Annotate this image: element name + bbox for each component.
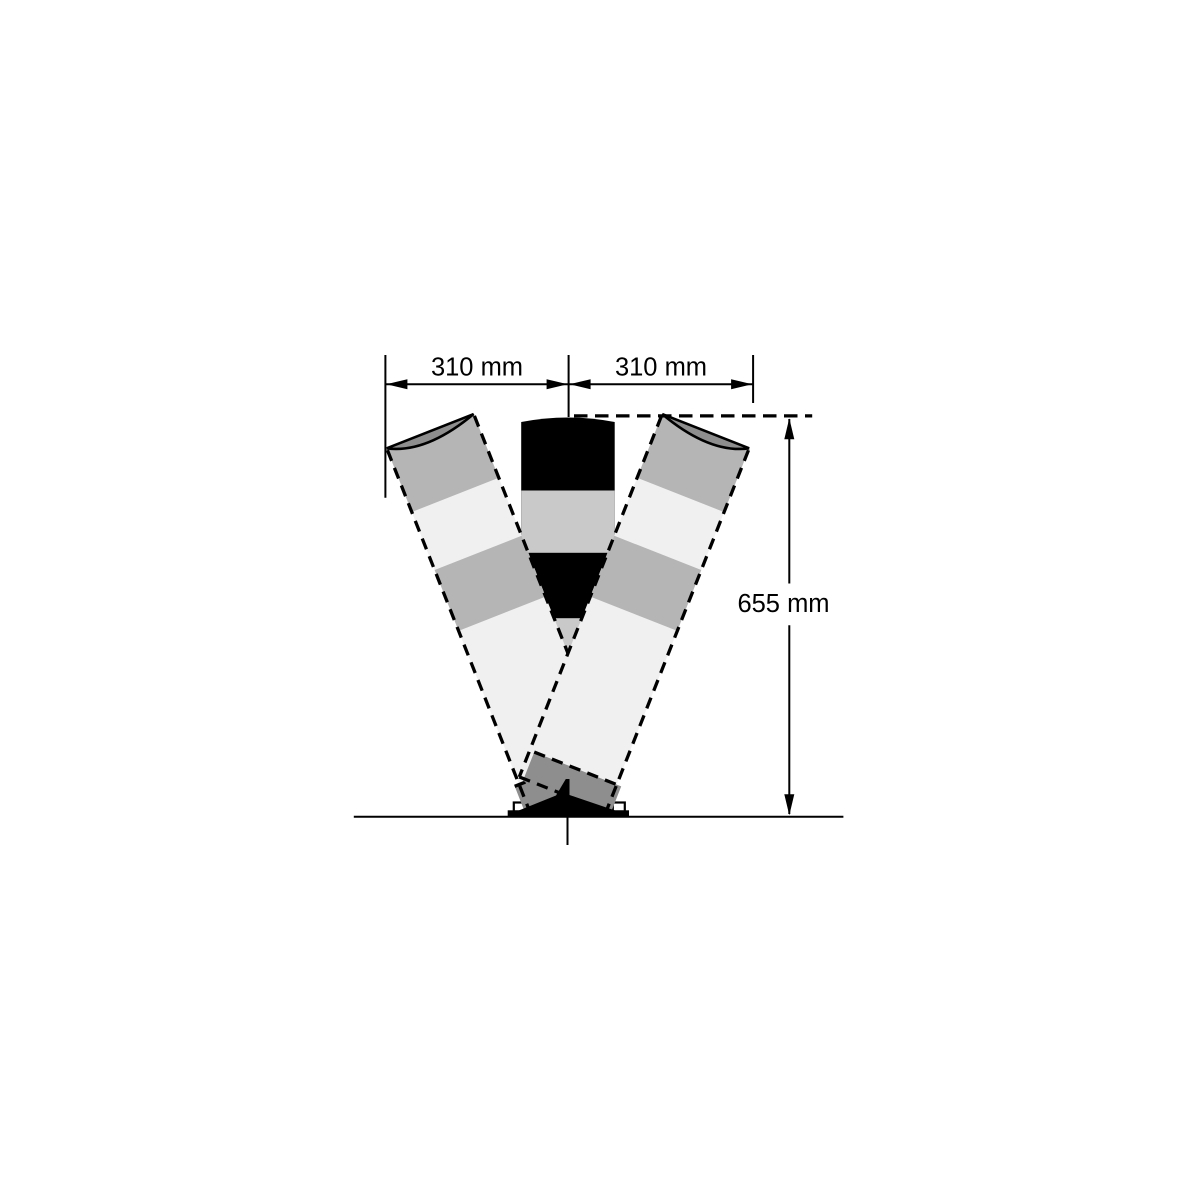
svg-text:310 mm: 310 mm: [615, 354, 707, 382]
svg-text:655 mm: 655 mm: [737, 590, 829, 618]
svg-text:310 mm: 310 mm: [431, 354, 523, 382]
